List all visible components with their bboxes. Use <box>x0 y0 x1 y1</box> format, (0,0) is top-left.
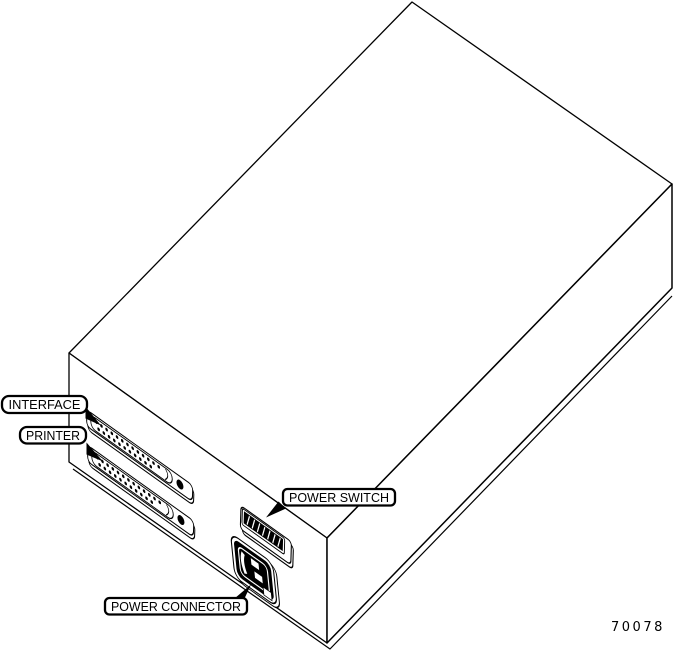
printer-label: PRINTER <box>20 427 86 444</box>
power-connector-label-text: POWER CONNECTOR <box>111 600 241 614</box>
power-connector-label: POWER CONNECTOR <box>105 598 247 615</box>
interface-label-text: INTERFACE <box>9 398 81 412</box>
enclosure-diagram: INTERFACE PRINTER POWER SWITCH POWER CON… <box>0 0 675 653</box>
figure-number: 70078 <box>611 620 665 635</box>
power-switch-label-text: POWER SWITCH <box>289 491 389 505</box>
rear-view-illustration: INTERFACE PRINTER POWER SWITCH POWER CON… <box>0 0 675 653</box>
printer-label-text: PRINTER <box>26 429 80 443</box>
enclosure-box <box>69 2 672 649</box>
interface-label: INTERFACE <box>2 396 87 413</box>
power-switch-label: POWER SWITCH <box>283 489 395 506</box>
